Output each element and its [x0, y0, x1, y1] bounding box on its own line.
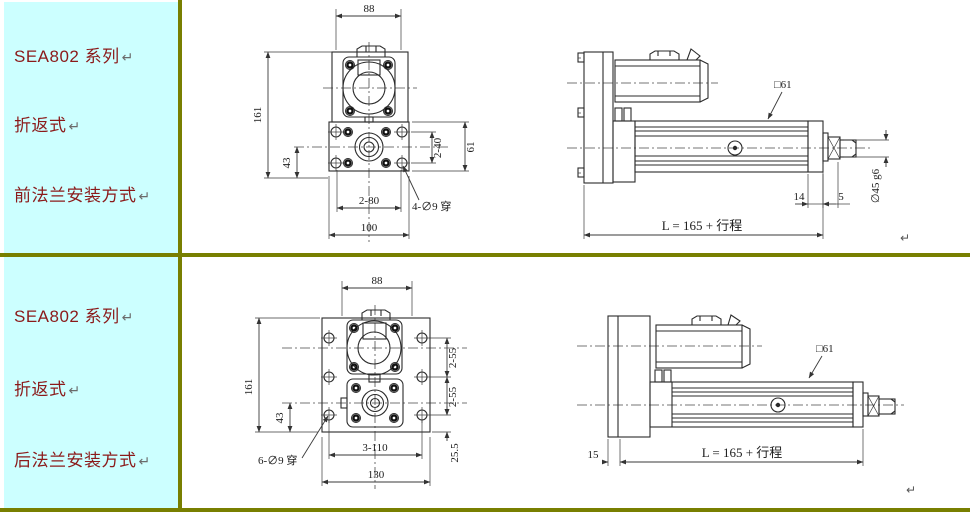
end-cap: [853, 382, 863, 427]
type-text: 折返式: [14, 380, 67, 399]
rear-flange-side: [608, 316, 650, 437]
return-mark-icon: ↵: [139, 453, 151, 469]
dim-hole-vertical-lower: 2-55: [447, 386, 459, 407]
end-cap: [808, 121, 823, 172]
dim-width: 88: [372, 275, 384, 287]
label-holes: 6-∅9 穿: [258, 453, 297, 467]
dim-flange-height: 61: [465, 142, 477, 153]
dim-width: 88: [364, 3, 376, 15]
return-mark-icon: ↵: [69, 118, 81, 134]
output-shaft: [863, 393, 895, 416]
type-text: 折返式: [14, 116, 67, 135]
motor-connector-side: [650, 51, 679, 60]
series-text: SEA802 系列: [14, 47, 120, 66]
mount-label: 前法兰安装方式↵: [14, 181, 151, 206]
motor-connector-side: [692, 316, 721, 325]
sidebar-cell-front-mount: SEA802 系列↵ 折返式↵ 前法兰安装方式↵: [4, 2, 178, 253]
dim-offset: 43: [281, 157, 293, 169]
dim-height: 161: [243, 379, 255, 396]
dim-gap: 5: [838, 191, 844, 203]
side-view-front-flange: □61 14 5 ∅45 g6 L = 165 + 行程 ↵: [567, 49, 910, 245]
dim-offset: 43: [274, 412, 286, 424]
return-mark-icon: ↵: [122, 309, 134, 325]
series-label: SEA802 系列↵: [14, 302, 134, 327]
front-view-rear-flange: 88 161 43 2-55 2-55 25.5 6-∅9 穿 3-110: [243, 275, 467, 489]
dim-hole-vertical-upper: 2-55: [447, 347, 459, 368]
dim-end: 14: [794, 191, 806, 203]
front-flange-side: [584, 52, 613, 183]
rear-mount-drawings: 88 161 43 2-55 2-55 25.5 6-∅9 穿 3-110: [182, 257, 970, 508]
mount-text: 后法兰安装方式: [14, 451, 137, 470]
series-text: SEA802 系列: [14, 307, 120, 326]
dim-total-length: L = 165 + 行程: [662, 218, 743, 233]
label-body-square: □61: [774, 79, 792, 91]
label-body-square: □61: [816, 343, 834, 355]
dim-hole-horizontal: 2-80: [359, 195, 380, 207]
mount-text: 前法兰安装方式: [14, 186, 137, 205]
label-shaft-diameter: ∅45 g6: [870, 168, 882, 203]
dim-flange-width: 100: [361, 222, 378, 234]
dim-total-length: L = 165 + 行程: [702, 445, 783, 460]
type-label: 折返式↵: [14, 111, 81, 136]
sidebar-cell-rear-mount: SEA802 系列↵ 折返式↵ 后法兰安装方式↵: [4, 257, 178, 508]
return-mark-icon: ↵: [139, 188, 151, 204]
actuator-body: [635, 121, 808, 172]
series-label: SEA802 系列↵: [14, 42, 134, 67]
type-label: 折返式↵: [14, 375, 81, 400]
dim-hole-vertical: 2-40: [432, 137, 444, 158]
dim-plate-thickness: 15: [588, 449, 600, 461]
drive-housing: [613, 121, 635, 182]
front-mount-drawings: 88 161 43 2-40 61 4-∅9 穿 2-80: [182, 0, 970, 253]
dim-bottom-offset: 25.5: [449, 443, 461, 463]
dim-plate-width: 130: [368, 469, 385, 481]
plate-holes: [321, 330, 430, 423]
dim-height: 161: [252, 107, 264, 124]
return-mark-icon: ↵: [122, 49, 134, 65]
table-bottom-border: [0, 508, 970, 512]
dim-hole-horizontal: 3-110: [362, 442, 388, 454]
mount-label: 后法兰安装方式↵: [14, 446, 151, 471]
label-holes: 4-∅9 穿: [412, 199, 451, 213]
return-mark-icon: ↵: [900, 231, 910, 245]
return-mark-icon: ↵: [69, 382, 81, 398]
catalog-page: SEA802 系列↵ 折返式↵ 前法兰安装方式↵ SEA802 系列↵ 折返式↵…: [0, 0, 970, 517]
return-mark-icon: ↵: [906, 483, 916, 497]
actuator-body: [650, 382, 853, 427]
front-view-front-flange: 88 161 43 2-40 61 4-∅9 穿 2-80: [252, 3, 477, 242]
flange-clips: [578, 53, 584, 177]
side-view-rear-flange: □61 15 L = 165 + 行程 ↵: [577, 315, 916, 497]
